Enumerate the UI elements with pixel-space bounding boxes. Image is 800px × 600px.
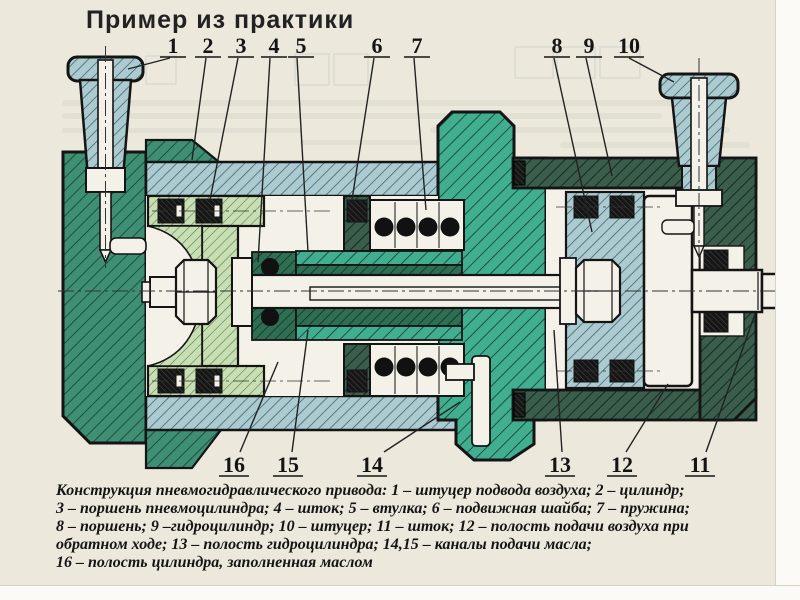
callout-4: 4 [269, 33, 280, 58]
rod-oil-channel [310, 287, 572, 300]
callout-10: 10 [618, 33, 640, 58]
page-title: Пример из практики [86, 6, 354, 35]
callout-15: 15 [277, 452, 299, 477]
callout-7: 7 [412, 33, 423, 58]
caption-line-3: 8 – поршень; 9 –гидроцилиндр; 10 – штуце… [56, 518, 770, 536]
spring-top [370, 200, 464, 250]
callout-9: 9 [584, 33, 595, 58]
paper-edge-right [775, 0, 800, 600]
figure-caption: Конструкция пневмогидравлического привод… [56, 482, 770, 572]
callout-1: 1 [168, 33, 179, 58]
paper-edge-bottom [0, 585, 800, 600]
callout-3: 3 [236, 33, 247, 58]
callout-12: 12 [611, 452, 633, 477]
o-ring-bottom [261, 308, 279, 326]
callout-16: 16 [223, 452, 245, 477]
callout-8: 8 [552, 33, 563, 58]
o-ring-top [261, 258, 279, 276]
callout-13: 13 [549, 452, 571, 477]
slide: 1 2 3 4 5 6 7 8 9 10 16 15 14 13 12 11 П… [0, 0, 800, 600]
callout-2: 2 [203, 33, 214, 58]
rod-nut [176, 260, 216, 324]
callout-11: 11 [690, 452, 711, 477]
caption-line-5: 16 – полость цилиндра, заполненная масло… [56, 554, 770, 572]
caption-line-1: Конструкция пневмогидравлического привод… [56, 482, 770, 500]
callout-5: 5 [296, 33, 307, 58]
caption-line-4: обратном ходе; 13 – полость гидроцилиндр… [56, 536, 770, 554]
caption-line-2: 3 – поршень пневмоцилиндра; 4 – шток; 5 … [56, 500, 770, 518]
callout-14: 14 [361, 452, 383, 477]
callout-6: 6 [372, 33, 383, 58]
